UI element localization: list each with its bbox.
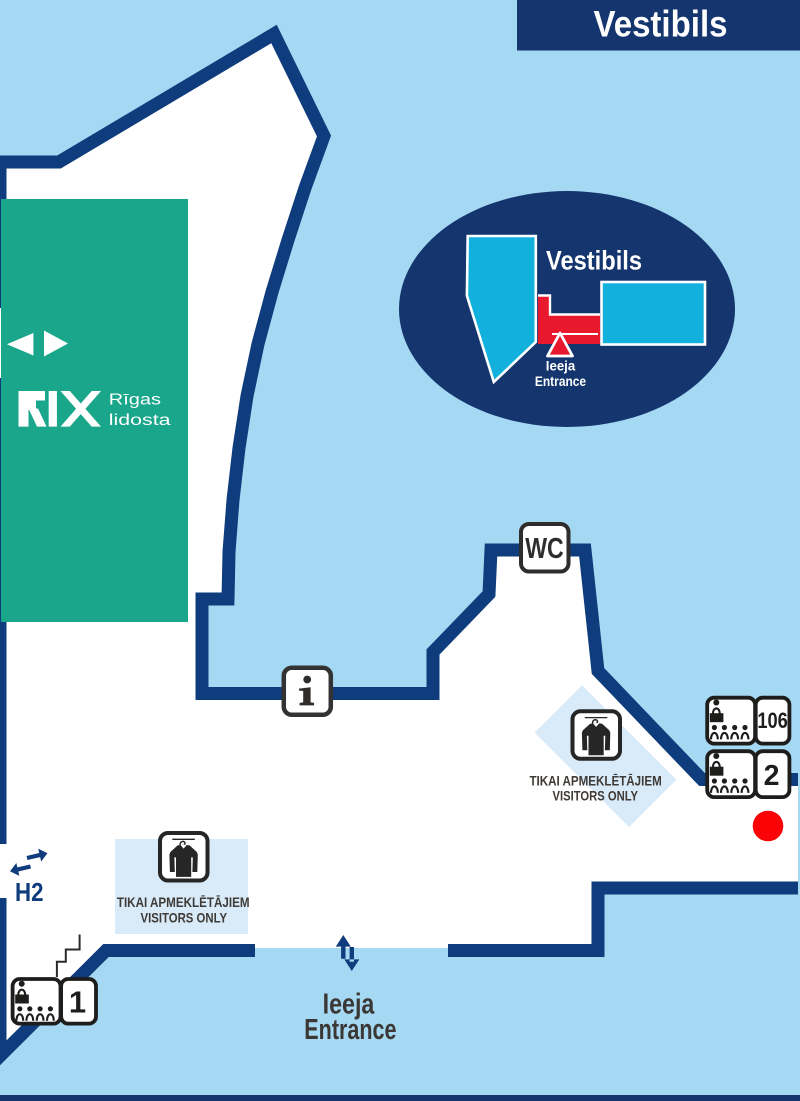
svg-text:lidosta: lidosta bbox=[109, 412, 171, 429]
svg-text:1: 1 bbox=[69, 984, 86, 1019]
svg-text:Vestibils: Vestibils bbox=[546, 246, 642, 276]
svg-text:VISITORS ONLY: VISITORS ONLY bbox=[141, 910, 228, 926]
svg-text:Vestibils: Vestibils bbox=[594, 4, 728, 45]
svg-text:VISITORS ONLY: VISITORS ONLY bbox=[553, 788, 639, 804]
svg-text:Rīgas: Rīgas bbox=[109, 392, 161, 409]
svg-text:2: 2 bbox=[764, 760, 780, 792]
svg-text:WC: WC bbox=[525, 533, 564, 565]
svg-text:106: 106 bbox=[757, 708, 788, 733]
svg-text:Entrance: Entrance bbox=[535, 374, 587, 389]
svg-text:TIKAI APMEKLĒTĀJIEM: TIKAI APMEKLĒTĀJIEM bbox=[529, 772, 661, 788]
svg-text:Entrance: Entrance bbox=[304, 1014, 396, 1046]
svg-text:H2: H2 bbox=[15, 877, 44, 907]
svg-text:TIKAI APMEKLĒTĀJIEM: TIKAI APMEKLĒTĀJIEM bbox=[117, 894, 250, 910]
svg-text:Ieeja: Ieeja bbox=[546, 358, 576, 373]
